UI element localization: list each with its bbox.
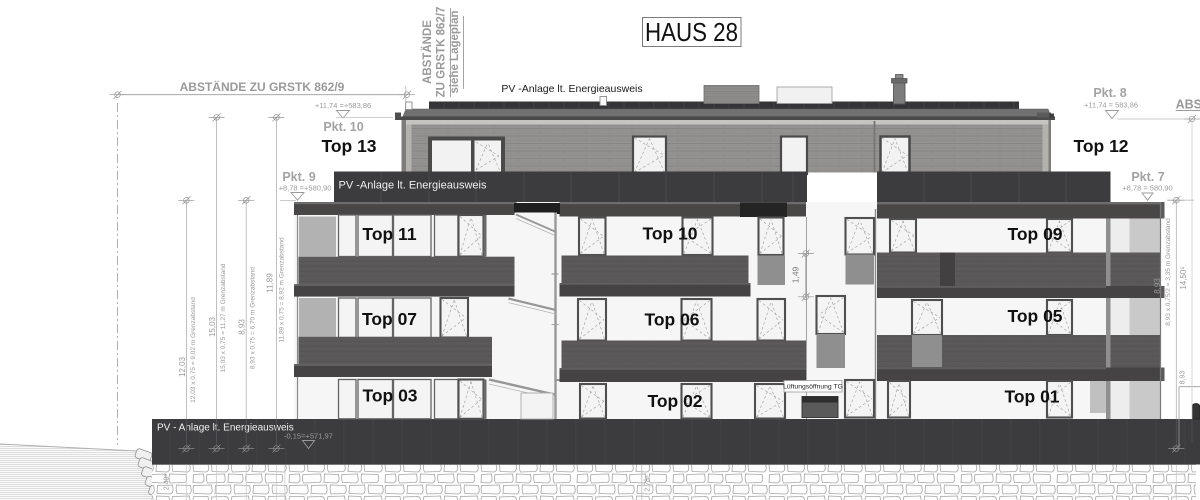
svg-text:+8,78 = 580,90: +8,78 = 580,90 xyxy=(1122,184,1172,193)
svg-text:15,03: 15,03 xyxy=(208,316,217,337)
svg-text:11,89 x 0,75 = 8,92 m Grenzabs: 11,89 x 0,75 = 8,92 m Grenzabstand xyxy=(279,237,286,343)
svg-text:Top 03: Top 03 xyxy=(362,386,417,406)
svg-text:+8,78 =+580,90: +8,78 =+580,90 xyxy=(279,184,332,193)
svg-text:Top 09: Top 09 xyxy=(1007,224,1062,244)
svg-text:8,93 x 0,75 = 6,70 m Grenzabst: 8,93 x 0,75 = 6,70 m Grenzabstand xyxy=(250,267,257,369)
svg-text:Top 12: Top 12 xyxy=(1073,136,1128,156)
svg-text:8,93 x 0,75/2 = 3,35 m Grenzab: 8,93 x 0,75/2 = 3,35 m Grenzabstand xyxy=(1165,218,1172,326)
svg-text:8,93: 8,93 xyxy=(238,319,247,335)
svg-text:11,89: 11,89 xyxy=(266,273,275,293)
svg-text:15,03 x 0,75 = 11,27 m Grenzab: 15,03 x 0,75 = 11,27 m Grenzabstand xyxy=(220,263,227,372)
svg-text:14,50⁵: 14,50⁵ xyxy=(1179,266,1188,289)
svg-text:PV -Anlage lt. Energieausweis: PV -Anlage lt. Energieausweis xyxy=(501,83,642,95)
svg-text:ZU GRSTK 862/7: ZU GRSTK 862/7 xyxy=(436,7,448,98)
svg-text:HAUS 28: HAUS 28 xyxy=(645,19,738,47)
svg-text:+11,74 =+583,86: +11,74 =+583,86 xyxy=(315,101,371,110)
svg-text:8,93: 8,93 xyxy=(1153,278,1162,294)
svg-text:12,03 x 0,75 = 9,02 m Grenzabs: 12,03 x 0,75 = 9,02 m Grenzabstand xyxy=(190,297,197,403)
svg-text:PV -Anlage lt. Energieausweis: PV -Anlage lt. Energieausweis xyxy=(339,180,487,192)
svg-text:Top 10: Top 10 xyxy=(642,224,697,244)
svg-text:ABSTÄ: ABSTÄ xyxy=(1176,97,1200,112)
svg-text:Top 11: Top 11 xyxy=(362,224,416,244)
svg-text:1,49: 1,49 xyxy=(791,266,801,283)
svg-text:Top 01: Top 01 xyxy=(1004,387,1059,407)
svg-text:Top 05: Top 05 xyxy=(1007,306,1062,326)
svg-text:12,03: 12,03 xyxy=(178,356,187,377)
svg-text:-0,15=+571,97: -0,15=+571,97 xyxy=(284,432,333,441)
svg-text:Top 02: Top 02 xyxy=(647,391,702,411)
svg-text:Top 06: Top 06 xyxy=(644,310,699,330)
svg-text:Top 13: Top 13 xyxy=(321,136,376,156)
svg-text:Pkt. 10: Pkt. 10 xyxy=(323,120,363,134)
svg-text:PV - Anlage lt. Energieausweis: PV - Anlage lt. Energieausweis xyxy=(157,423,294,434)
svg-text:Pkt. 8: Pkt. 8 xyxy=(1093,86,1126,100)
svg-text:ABSTÄNDE ZU GRSTK 862/9: ABSTÄNDE ZU GRSTK 862/9 xyxy=(180,79,345,94)
svg-text:Pkt. 9: Pkt. 9 xyxy=(282,170,315,184)
svg-text:8,93: 8,93 xyxy=(1180,371,1187,385)
svg-text:2,78⁵: 2,78⁵ xyxy=(645,475,652,492)
svg-text:+11,74 = 583,86: +11,74 = 583,86 xyxy=(1084,101,1138,110)
svg-text:ABSTÄNDE: ABSTÄNDE xyxy=(421,20,434,84)
svg-text:2,40⁵: 2,40⁵ xyxy=(164,474,171,491)
svg-text:Pkt. 7: Pkt. 7 xyxy=(1131,170,1164,184)
svg-text:Lüftungsöffnung TG: Lüftungsöffnung TG xyxy=(783,384,843,391)
svg-text:Top 07: Top 07 xyxy=(362,309,417,329)
